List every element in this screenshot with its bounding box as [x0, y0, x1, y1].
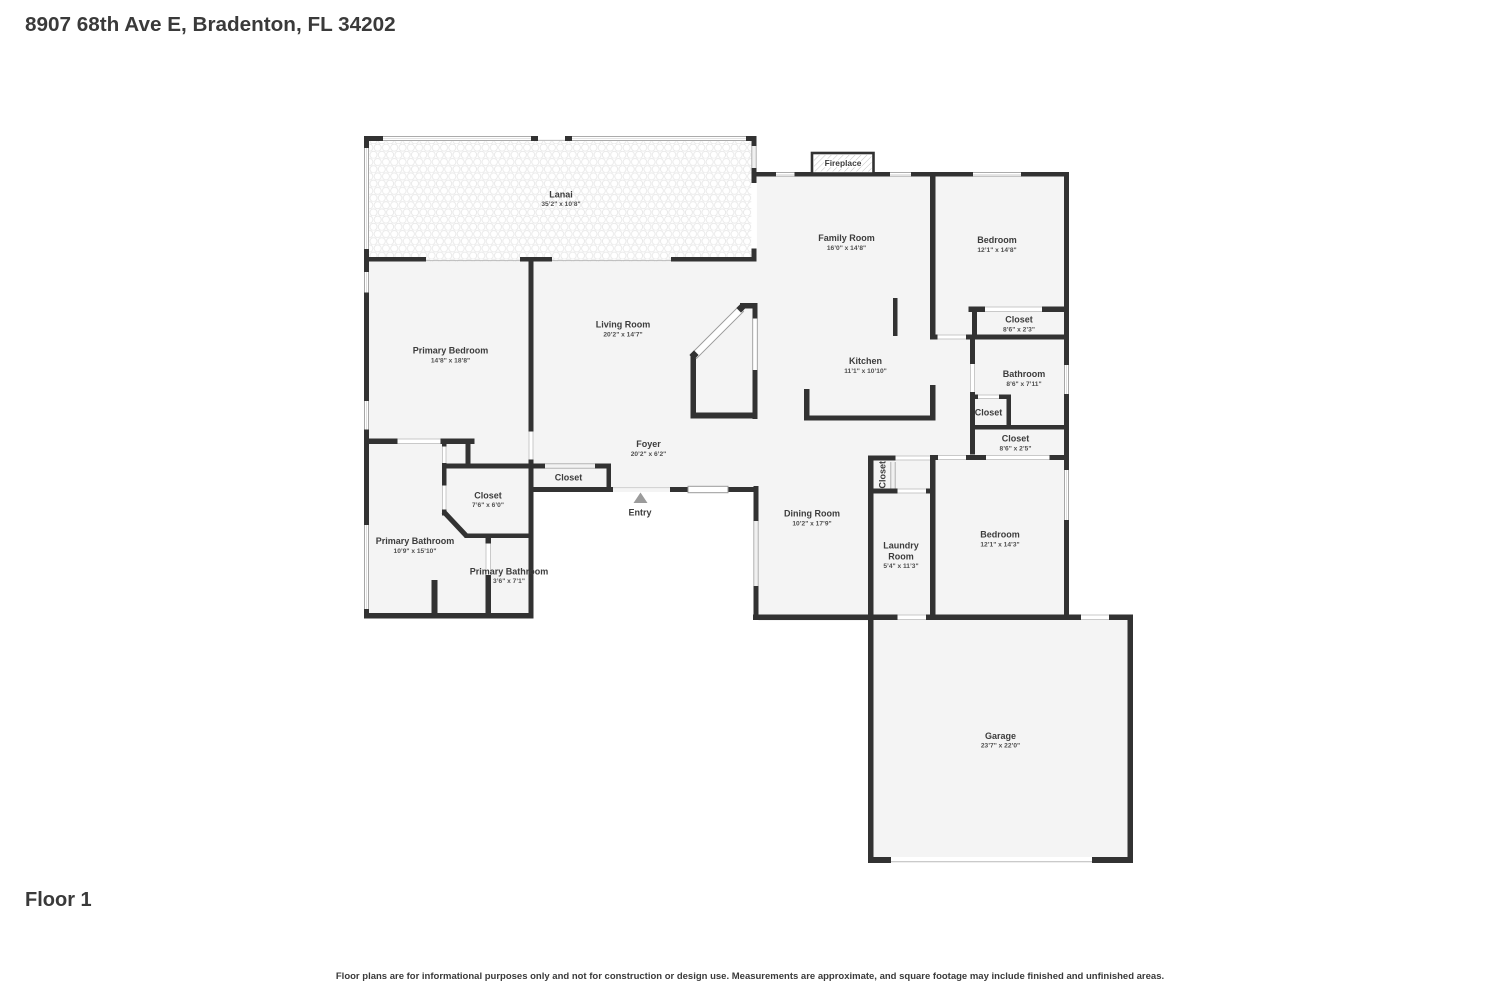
svg-text:23’7" x 22’0": 23’7" x 22’0" — [981, 742, 1020, 749]
svg-text:3’6" x 7’1": 3’6" x 7’1" — [493, 578, 525, 585]
svg-text:Bathroom: Bathroom — [1003, 369, 1046, 379]
svg-text:20’2" x 6’2": 20’2" x 6’2" — [631, 451, 667, 458]
svg-text:10’9" x 15’10": 10’9" x 15’10" — [394, 548, 437, 555]
svg-text:8’6" x 2’3": 8’6" x 2’3" — [1003, 326, 1035, 333]
svg-text:Closet: Closet — [555, 473, 583, 483]
svg-text:Primary Bathroom: Primary Bathroom — [470, 567, 549, 577]
svg-text:Primary Bedroom: Primary Bedroom — [413, 345, 489, 355]
svg-text:Kitchen: Kitchen — [849, 356, 882, 366]
svg-text:Bedroom: Bedroom — [977, 235, 1017, 245]
svg-text:11’1" x 10’10": 11’1" x 10’10" — [844, 368, 887, 375]
svg-text:Family Room: Family Room — [818, 233, 875, 243]
svg-text:Dining Room: Dining Room — [784, 509, 840, 519]
svg-text:Primary Bathroom: Primary Bathroom — [376, 536, 455, 546]
svg-text:Closet: Closet — [975, 408, 1003, 418]
svg-text:14’8" x 18’8": 14’8" x 18’8" — [431, 357, 470, 364]
svg-text:Closet: Closet — [1005, 314, 1033, 324]
svg-text:35’2" x 10’8": 35’2" x 10’8" — [541, 201, 580, 208]
svg-text:Room: Room — [888, 552, 914, 562]
svg-text:Laundry: Laundry — [883, 541, 919, 551]
svg-text:Closet: Closet — [878, 461, 888, 489]
svg-text:Entry: Entry — [628, 508, 651, 518]
svg-text:Foyer: Foyer — [636, 439, 661, 449]
svg-text:16’0" x 14’8": 16’0" x 14’8" — [827, 245, 866, 252]
svg-text:Closet: Closet — [474, 491, 502, 501]
svg-text:12’1" x 14’8": 12’1" x 14’8" — [977, 247, 1016, 254]
svg-text:10’2" x 17’9": 10’2" x 17’9" — [792, 521, 831, 528]
svg-text:12’1" x 14’3": 12’1" x 14’3" — [980, 542, 1019, 549]
svg-text:7’6" x 6’0": 7’6" x 6’0" — [472, 502, 504, 509]
svg-text:Fireplace: Fireplace — [825, 158, 862, 168]
svg-text:Closet: Closet — [1002, 434, 1030, 444]
svg-text:8’6" x 2’5": 8’6" x 2’5" — [1000, 446, 1032, 453]
svg-text:Living Room: Living Room — [596, 319, 651, 329]
svg-text:5’4" x 11’3": 5’4" x 11’3" — [883, 563, 918, 570]
svg-text:Garage: Garage — [985, 731, 1016, 741]
svg-text:20’2" x 14’7": 20’2" x 14’7" — [603, 331, 642, 338]
svg-text:8’6" x 7’11": 8’6" x 7’11" — [1006, 381, 1041, 388]
svg-text:Bedroom: Bedroom — [980, 530, 1020, 540]
svg-text:Lanai: Lanai — [549, 189, 573, 199]
